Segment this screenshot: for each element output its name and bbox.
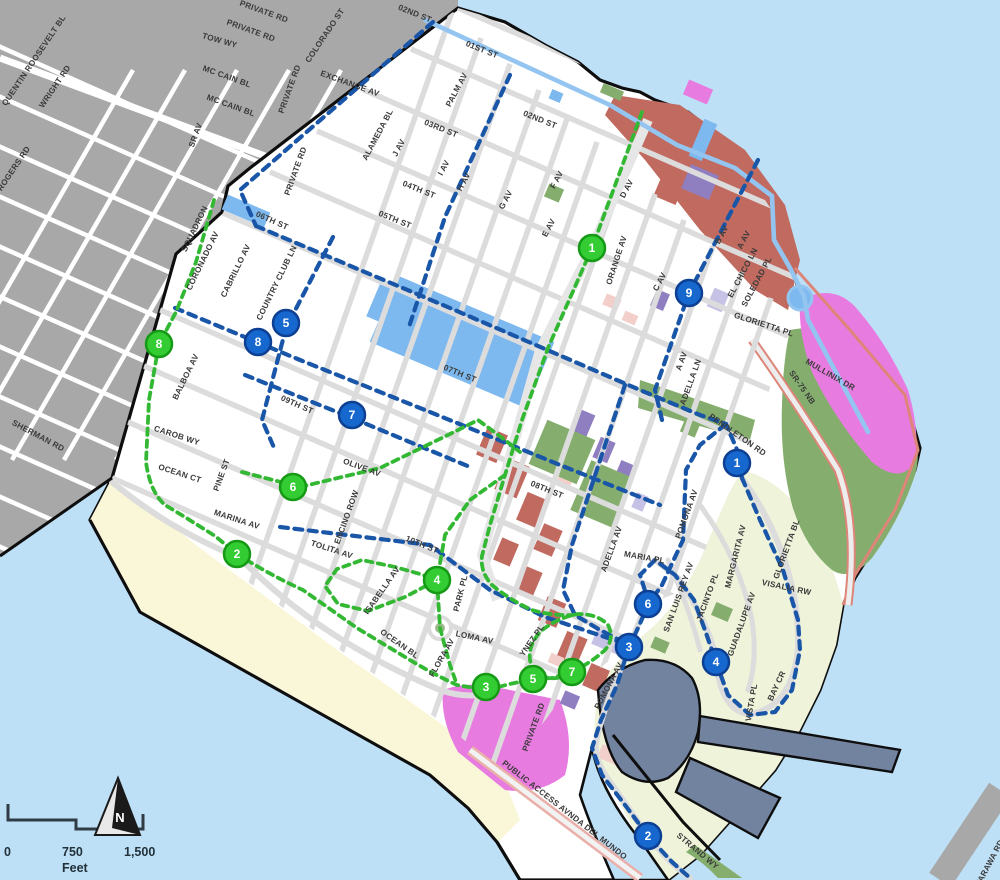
route-marker-blue-5: 5 (273, 310, 299, 336)
route-marker-green-8: 8 (146, 331, 172, 357)
route-marker-blue-1: 1 (724, 450, 750, 476)
scale-tick-0: 0 (4, 845, 11, 859)
svg-text:3: 3 (626, 640, 633, 654)
route-marker-green-4: 4 (424, 567, 450, 593)
scale-unit-label: Feet (62, 861, 89, 875)
svg-text:7: 7 (349, 408, 356, 422)
route-marker-green-7: 7 (559, 659, 585, 685)
route-marker-blue-7: 7 (339, 402, 365, 428)
svg-text:8: 8 (255, 335, 262, 349)
svg-text:6: 6 (290, 480, 297, 494)
svg-text:2: 2 (234, 547, 241, 561)
north-arrow-label: N (115, 810, 124, 825)
svg-text:9: 9 (686, 286, 693, 300)
map-canvas: PRIVATE RDPRIVATE RDTOW WYMC CAIN BLMC C… (0, 0, 1000, 880)
route-marker-blue-2: 2 (635, 823, 661, 849)
svg-text:5: 5 (283, 316, 290, 330)
route-marker-green-1: 1 (579, 235, 605, 261)
svg-text:4: 4 (713, 655, 720, 669)
svg-text:6: 6 (645, 597, 652, 611)
scale-tick-1500: 1,500 (124, 845, 155, 859)
coronado-bike-map: PRIVATE RDPRIVATE RDTOW WYMC CAIN BLMC C… (0, 0, 1000, 880)
route-marker-blue-8: 8 (245, 329, 271, 355)
svg-text:1: 1 (589, 241, 596, 255)
svg-text:5: 5 (530, 672, 537, 686)
svg-text:7: 7 (569, 665, 576, 679)
route-marker-green-2: 2 (224, 541, 250, 567)
route-marker-blue-4: 4 (703, 649, 729, 675)
route-marker-green-3: 3 (473, 674, 499, 700)
svg-text:2: 2 (645, 829, 652, 843)
route-marker-blue-6: 6 (635, 591, 661, 617)
route-marker-blue-3: 3 (616, 634, 642, 660)
route-marker-blue-9: 9 (676, 280, 702, 306)
svg-text:4: 4 (434, 573, 441, 587)
route-marker-green-5: 5 (520, 666, 546, 692)
route-marker-green-6: 6 (280, 474, 306, 500)
svg-text:3: 3 (483, 680, 490, 694)
scale-tick-750: 750 (62, 845, 83, 859)
svg-text:1: 1 (734, 456, 741, 470)
svg-text:8: 8 (156, 337, 163, 351)
